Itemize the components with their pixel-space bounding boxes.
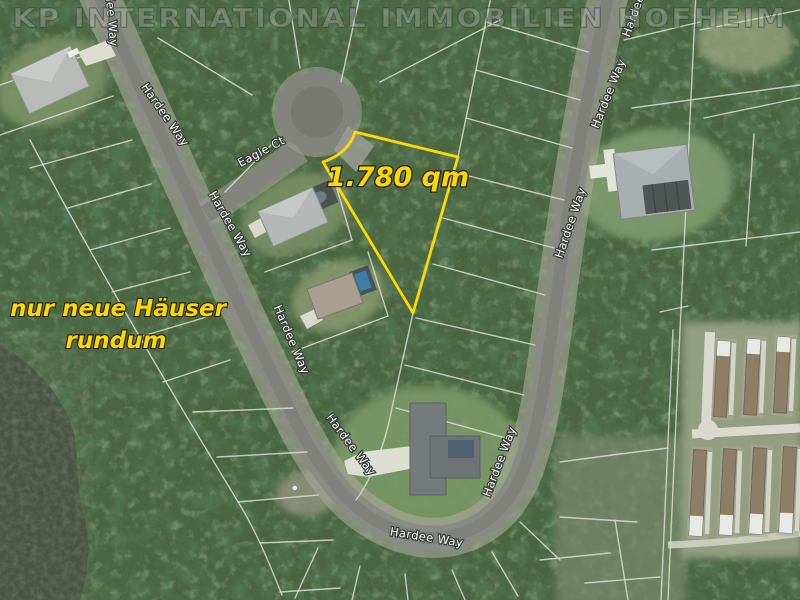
home-driveway <box>737 451 740 533</box>
satellite-map: Hardee WayHardee WayEagle CtHardee WayHa… <box>0 0 800 600</box>
home-white-roof <box>779 513 793 534</box>
home-driveway <box>707 452 710 534</box>
home-white-roof <box>777 337 791 353</box>
eagle-ct-culdesac-center <box>291 86 343 138</box>
home-white-roof <box>749 514 763 535</box>
park-entry-road <box>706 332 710 428</box>
home-white-roof <box>689 516 703 537</box>
home-white-roof <box>717 341 731 357</box>
home-white-roof <box>747 339 761 355</box>
home-driveway <box>731 343 734 415</box>
pool-enclosure <box>448 440 474 458</box>
note-line-2: rundum <box>66 328 167 354</box>
watermark: KP INTERNATIONAL IMMOBILIEN HOFHEIM <box>13 4 788 34</box>
park-cross-road <box>692 428 800 434</box>
ground-marker <box>293 486 297 490</box>
home-driveway <box>761 341 764 413</box>
parcel-area-label: 1.780 qm <box>327 162 469 193</box>
listing-photo-frame: Hardee WayHardee WayEagle CtHardee WayHa… <box>0 0 800 600</box>
home-white-roof <box>719 515 733 536</box>
note-line-1: nur neue Häuser <box>10 296 227 322</box>
home-driveway <box>791 339 794 411</box>
home-driveway <box>767 450 770 532</box>
